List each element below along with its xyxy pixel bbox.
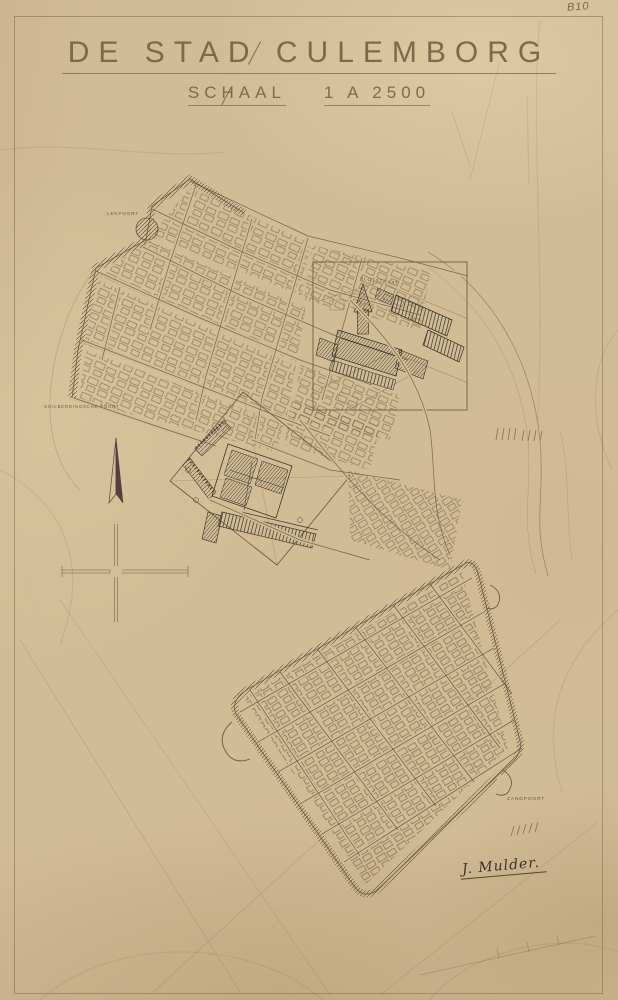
scale-row: SCHAAL 1 A 2500 [0, 83, 618, 106]
lower-town [222, 563, 522, 894]
label-goilberdinger-poort: GOILBERDINGSCHE POORT [44, 404, 120, 409]
title-block: DE STAD CULEMBORG SCHAAL 1 A 2500 [0, 36, 618, 106]
archive-mark: B10 [567, 0, 590, 14]
scale-label: SCHAAL [188, 83, 286, 106]
castle-corner-tower [202, 512, 222, 543]
map-title: DE STAD CULEMBORG [62, 36, 557, 74]
scale-value: 1 A 2500 [324, 83, 430, 106]
upper-town [72, 179, 468, 470]
label-zandpoort: ZANDPOORT. [507, 796, 547, 802]
compass-needle [109, 438, 123, 503]
survey-crosshair [62, 524, 188, 622]
lekpoort-gate-bastion [136, 218, 158, 240]
city-map-drawing: LEKPOORT GOILBERDINGSCHE POORT SLOTSTRAA… [0, 0, 618, 1000]
label-lekpoort: LEKPOORT [107, 211, 139, 216]
paper-creases [0, 20, 618, 1000]
scanned-map-sheet: { "document": { "archive_mark": "B10", "… [0, 0, 618, 1000]
